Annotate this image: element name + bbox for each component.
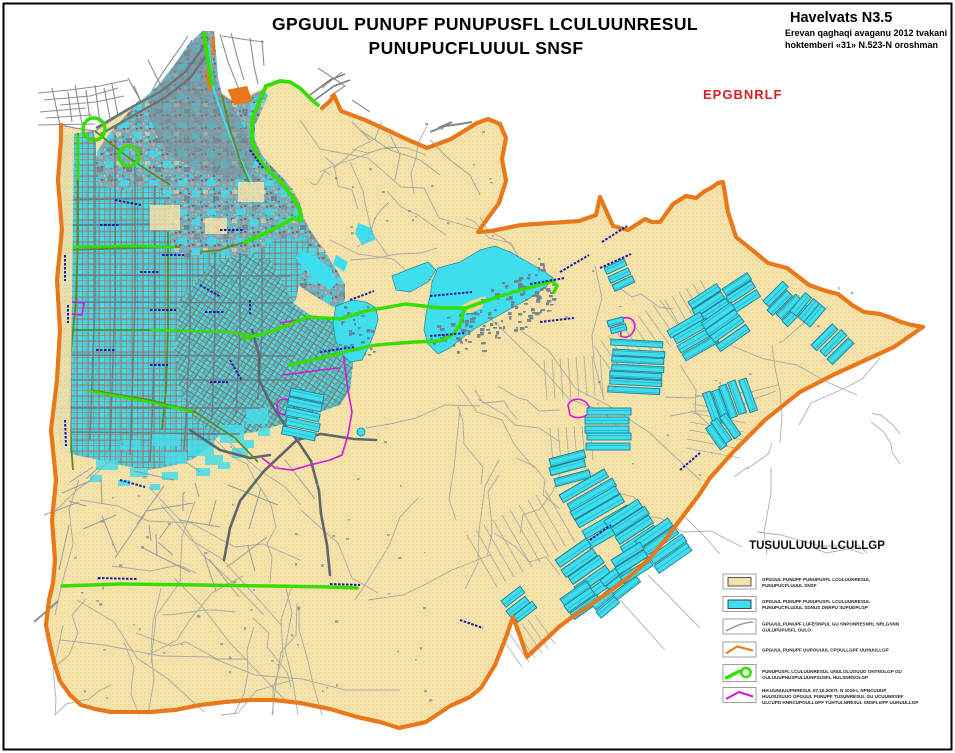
svg-text:GPGUUL PUNUPF PUNUPUSFL LCULUU: GPGUUL PUNUPF PUNUPUSFL LCULUUNRESUL [272, 14, 698, 34]
svg-text:TUSUULUUUL LCULLGP: TUSUULUUUL LCULLGP [749, 540, 885, 552]
svg-text:EPGBNRLF: EPGBNRLF [703, 87, 783, 102]
svg-text:HH UUNUUUPNRESUL 07.10.2007t.: HH UUNUUUPNRESUL 07.10.2007t. N 1019-L N… [762, 688, 886, 693]
svg-text:GPGUUL PUNUPF PUNUPUSFL LCULUU: GPGUUL PUNUPF PUNUPUSFL LCULUUNRESUL [762, 577, 870, 582]
svg-text:PUNUPUSFL LCULUUNRESUL UNULOLU: PUNUPUSFL LCULUUNRESUL UNULOLUOUUO ONTNO… [762, 669, 903, 674]
svg-text:GPGUUL PUNUPF PUNUPUSFL LCULUU: GPGUUL PUNUPF PUNUPUSFL LCULUUNRESUL [762, 599, 870, 604]
svg-text:GPGUUL PUNUPF UUPOUUUL CPOULLG: GPGUUL PUNUPF UUPOUUUL CPOULLGPF UUHUULL… [762, 648, 889, 653]
svg-text:PUNUPUCFLUUUL SDNUS DNRPU SUPU: PUNUPUCFLUUUL SDNUS DNRPU SUPUDPLGP [762, 605, 868, 610]
svg-text:ULCUPD HNRCUPOULLGPF TUHTULNRE: ULCUPD HNRCUPOULLGPF TUHTULNRESUL SNSFLG… [762, 700, 918, 705]
svg-text:GPGUUL PUNUPF LUFESNPUL GU SNP: GPGUUL PUNUPF LUFESNPUL GU SNPONRESNRL N… [762, 622, 900, 627]
svg-text:HUUSUSUUO GPGUUL PUNUPF TUSUNR: HUUSUSUUO GPGUUL PUNUPF TUSUNRESUL GU UC… [762, 694, 904, 699]
svg-text:hoktemberi «31» N.523-N or: hoktemberi «31» N.523-N oroshman [785, 40, 938, 50]
svg-text:PUNUPUCFLUUUL SNSF: PUNUPUCFLUUUL SNSF [762, 583, 817, 588]
svg-text:PUNUPUCFLUUUL SNSF: PUNUPUCFLUUUL SNSF [369, 38, 584, 58]
svg-text:OULUUUPHUSPULUUNPSUSFL HULSNRS: OULUUUPHUSPULUUNPSUSFL HULSNRSOLGP [762, 675, 868, 680]
svg-text:Havelvats N3.5: Havelvats N3.5 [790, 10, 892, 26]
svg-text:GULUPUPUSFL OULO: GULUPUPUSFL OULO [762, 628, 811, 633]
svg-text:Erevan qaghaqi avaganu 2012 tv: Erevan qaghaqi avaganu 2012 tvakani [785, 28, 947, 38]
